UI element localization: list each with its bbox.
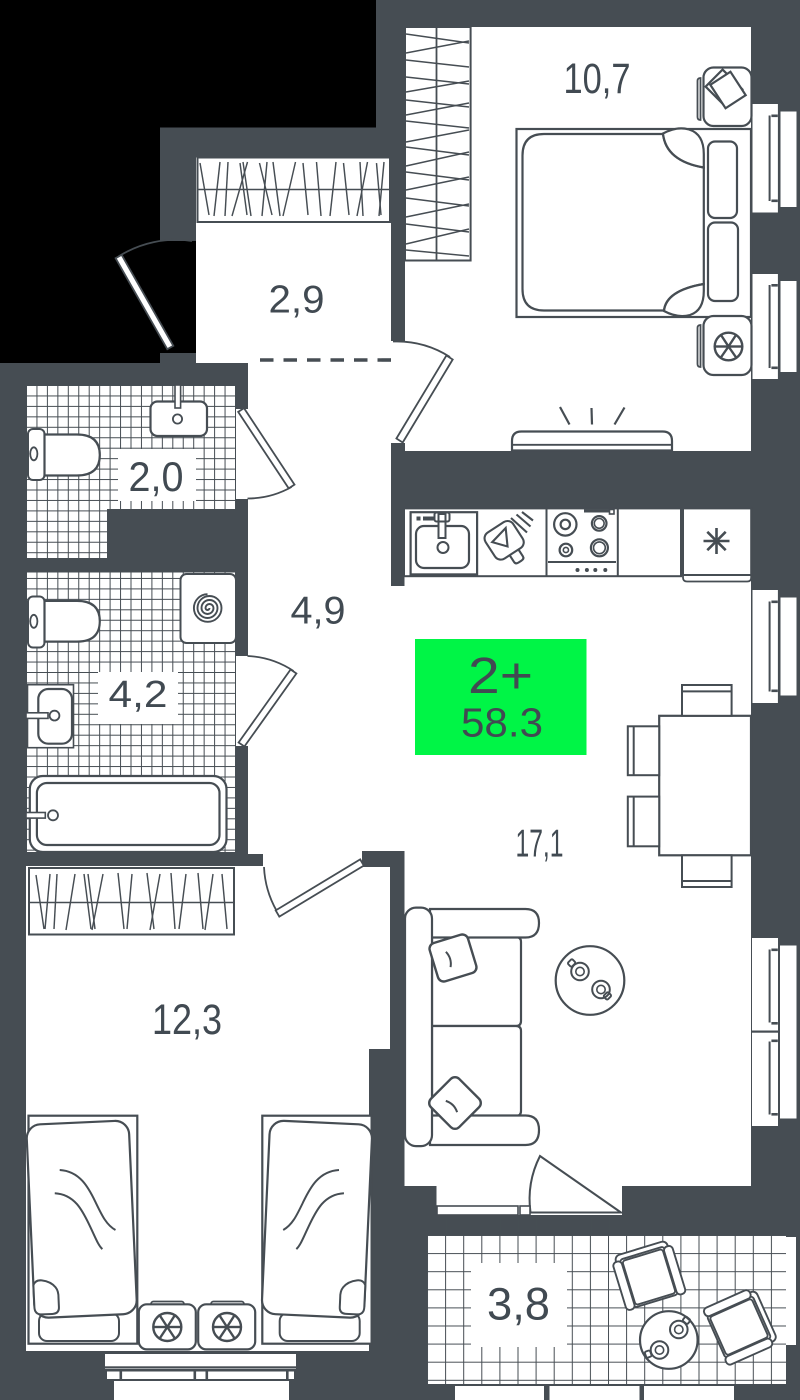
svg-text:2,9: 2,9 — [269, 279, 325, 322]
svg-text:2+: 2+ — [468, 647, 533, 704]
svg-text:2,0: 2,0 — [129, 453, 184, 500]
svg-text:17,1: 17,1 — [516, 823, 564, 866]
svg-text:3,8: 3,8 — [487, 1279, 550, 1330]
svg-text:12,3: 12,3 — [152, 996, 222, 1044]
svg-text:10,7: 10,7 — [564, 55, 631, 103]
svg-text:58.3: 58.3 — [461, 700, 543, 746]
svg-text:4,9: 4,9 — [291, 590, 346, 633]
svg-text:4,2: 4,2 — [109, 674, 168, 716]
